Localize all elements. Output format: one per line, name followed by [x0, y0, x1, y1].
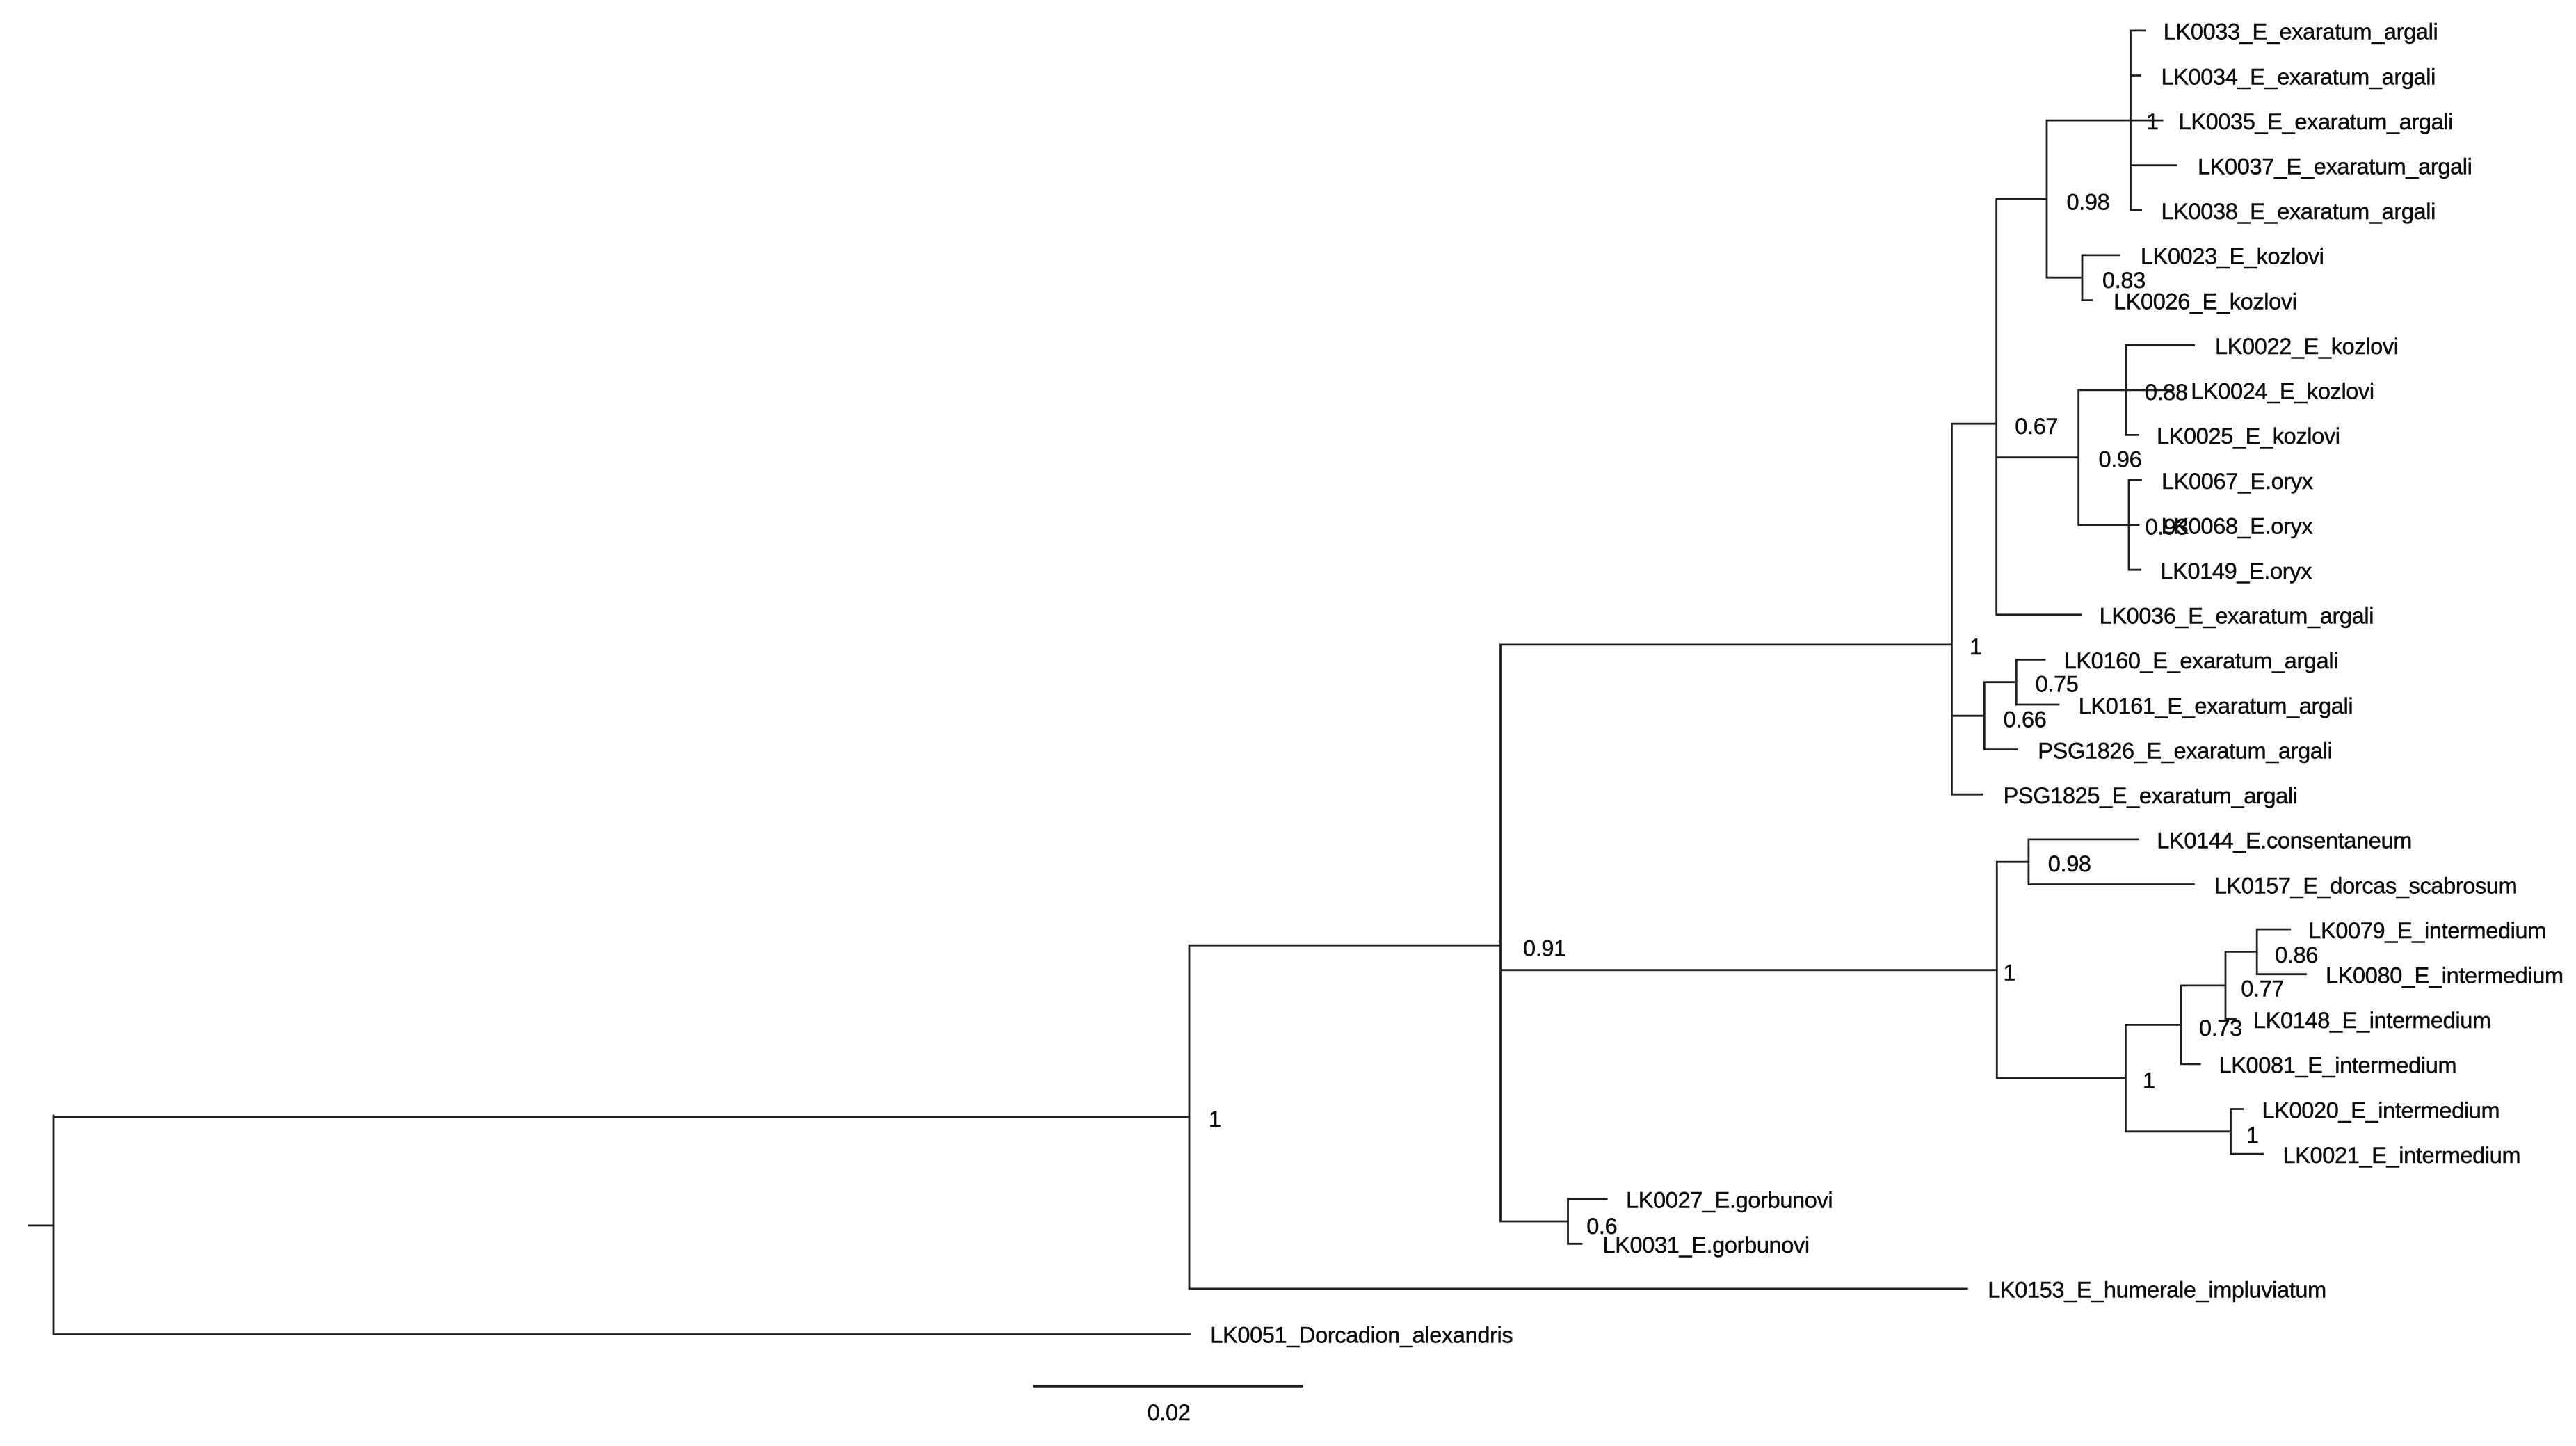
svg-text:0.93: 0.93: [2146, 514, 2189, 539]
svg-text:LK0023_E_kozlovi: LK0023_E_kozlovi: [2141, 244, 2324, 269]
svg-text:LK0038_E_exaratum_argali: LK0038_E_exaratum_argali: [2162, 199, 2436, 224]
svg-text:LK0153_E_humerale_impluviatum: LK0153_E_humerale_impluviatum: [1988, 1278, 2326, 1303]
svg-text:PSG1825_E_exaratum_argali: PSG1825_E_exaratum_argali: [2004, 783, 2298, 808]
svg-text:LK0031_E.gorbunovi: LK0031_E.gorbunovi: [1603, 1232, 1810, 1258]
svg-text:1: 1: [1970, 634, 1982, 659]
svg-text:LK0081_E_intermedium: LK0081_E_intermedium: [2219, 1053, 2457, 1078]
svg-text:1: 1: [2146, 109, 2159, 134]
svg-text:LK0079_E_intermedium: LK0079_E_intermedium: [2308, 918, 2546, 943]
svg-text:LK0021_E_intermedium: LK0021_E_intermedium: [2283, 1143, 2521, 1168]
svg-text:LK0027_E.gorbunovi: LK0027_E.gorbunovi: [1626, 1188, 1833, 1213]
svg-text:0.73: 0.73: [2199, 1015, 2242, 1041]
svg-text:1: 1: [1209, 1107, 1221, 1132]
svg-text:LK0148_E_intermedium: LK0148_E_intermedium: [2253, 1008, 2491, 1033]
svg-text:0.02: 0.02: [1148, 1400, 1191, 1425]
svg-text:LK0149_E.oryx: LK0149_E.oryx: [2160, 559, 2312, 584]
svg-text:LK0033_E_exaratum_argali: LK0033_E_exaratum_argali: [2164, 19, 2438, 45]
svg-text:0.86: 0.86: [2275, 942, 2318, 967]
svg-text:1: 1: [2143, 1068, 2155, 1093]
svg-text:LK0160_E_exaratum_argali: LK0160_E_exaratum_argali: [2064, 648, 2339, 673]
svg-text:LK0037_E_exaratum_argali: LK0037_E_exaratum_argali: [2198, 154, 2472, 179]
svg-text:0.91: 0.91: [1523, 935, 1566, 961]
svg-text:LK0022_E_kozlovi: LK0022_E_kozlovi: [2215, 334, 2399, 359]
svg-text:0.66: 0.66: [2004, 707, 2047, 732]
svg-text:LK0067_E.oryx: LK0067_E.oryx: [2162, 469, 2313, 494]
svg-text:LK0036_E_exaratum_argali: LK0036_E_exaratum_argali: [2100, 604, 2374, 629]
svg-text:0.96: 0.96: [2099, 447, 2142, 472]
svg-text:PSG1826_E_exaratum_argali: PSG1826_E_exaratum_argali: [2038, 738, 2332, 763]
svg-text:0.88: 0.88: [2145, 380, 2188, 405]
svg-text:0.75: 0.75: [2036, 672, 2079, 697]
svg-text:0.6: 0.6: [1586, 1214, 1617, 1239]
svg-text:1: 1: [2004, 960, 2016, 985]
svg-text:LK0051_Dorcadion_alexandris: LK0051_Dorcadion_alexandris: [1210, 1322, 1513, 1347]
svg-text:0.98: 0.98: [2067, 189, 2110, 214]
svg-text:LK0161_E_exaratum_argali: LK0161_E_exaratum_argali: [2079, 693, 2353, 718]
svg-text:0.83: 0.83: [2102, 268, 2146, 293]
svg-text:1: 1: [2246, 1123, 2259, 1148]
svg-text:LK0020_E_intermedium: LK0020_E_intermedium: [2262, 1098, 2500, 1123]
svg-text:LK0024_E_kozlovi: LK0024_E_kozlovi: [2191, 379, 2374, 404]
svg-text:LK0025_E_kozlovi: LK0025_E_kozlovi: [2157, 424, 2340, 449]
svg-text:0.77: 0.77: [2241, 976, 2284, 1001]
svg-text:LK0034_E_exaratum_argali: LK0034_E_exaratum_argali: [2162, 64, 2436, 89]
svg-text:LK0144_E.consentaneum: LK0144_E.consentaneum: [2157, 828, 2412, 853]
svg-text:LK0035_E_exaratum_argali: LK0035_E_exaratum_argali: [2179, 109, 2454, 134]
svg-text:LK0157_E_dorcas_scabrosum: LK0157_E_dorcas_scabrosum: [2214, 873, 2518, 898]
svg-text:0.67: 0.67: [2015, 414, 2058, 439]
svg-text:LK0080_E_intermedium: LK0080_E_intermedium: [2326, 963, 2563, 988]
svg-text:0.98: 0.98: [2048, 851, 2091, 876]
